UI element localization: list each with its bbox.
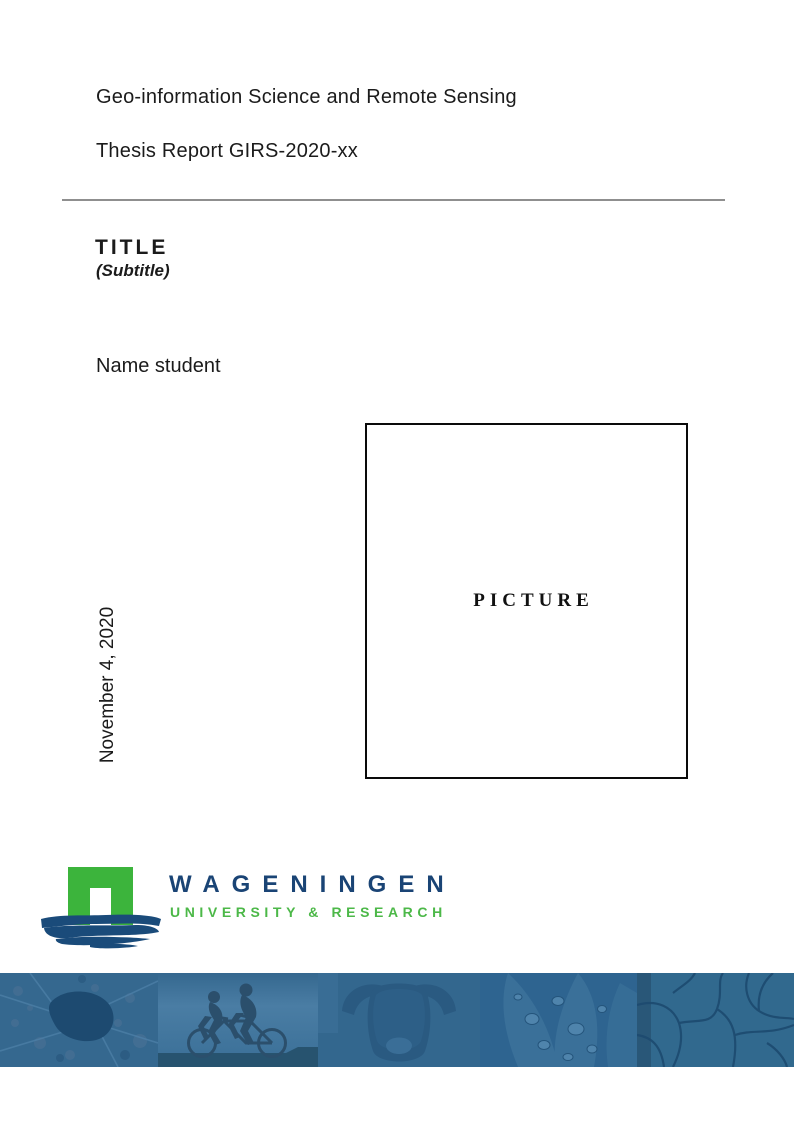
- thesis-title: TITLE: [95, 236, 168, 260]
- leaf-water-droplets-photo: [480, 973, 637, 1067]
- program-name: Geo-information Science and Remote Sensi…: [96, 86, 517, 109]
- publication-date: November 4, 2020: [97, 607, 119, 763]
- wageningen-logo-icon: [38, 858, 165, 954]
- picture-placeholder-label: PICTURE: [459, 590, 594, 612]
- aerial-map-photo: [0, 973, 158, 1067]
- tandem-cyclists-photo: [158, 973, 318, 1067]
- cracked-earth-photo: [637, 973, 794, 1067]
- highland-cow-photo: [318, 973, 480, 1067]
- thesis-subtitle: (Subtitle): [96, 261, 170, 281]
- logo-tagline: UNIVERSITY & RESEARCH: [170, 904, 447, 920]
- horizontal-rule: [62, 199, 725, 201]
- brush-stroke-icon: [41, 915, 161, 949]
- report-number: Thesis Report GIRS-2020-xx: [96, 140, 358, 163]
- photo-banner: [0, 973, 794, 1067]
- page: { "doc": { "program": "Geo-information S…: [0, 0, 794, 1123]
- author-name: Name student: [96, 355, 221, 378]
- logo-wordmark: WAGENINGEN: [169, 871, 456, 899]
- picture-placeholder-box: PICTURE: [365, 423, 688, 779]
